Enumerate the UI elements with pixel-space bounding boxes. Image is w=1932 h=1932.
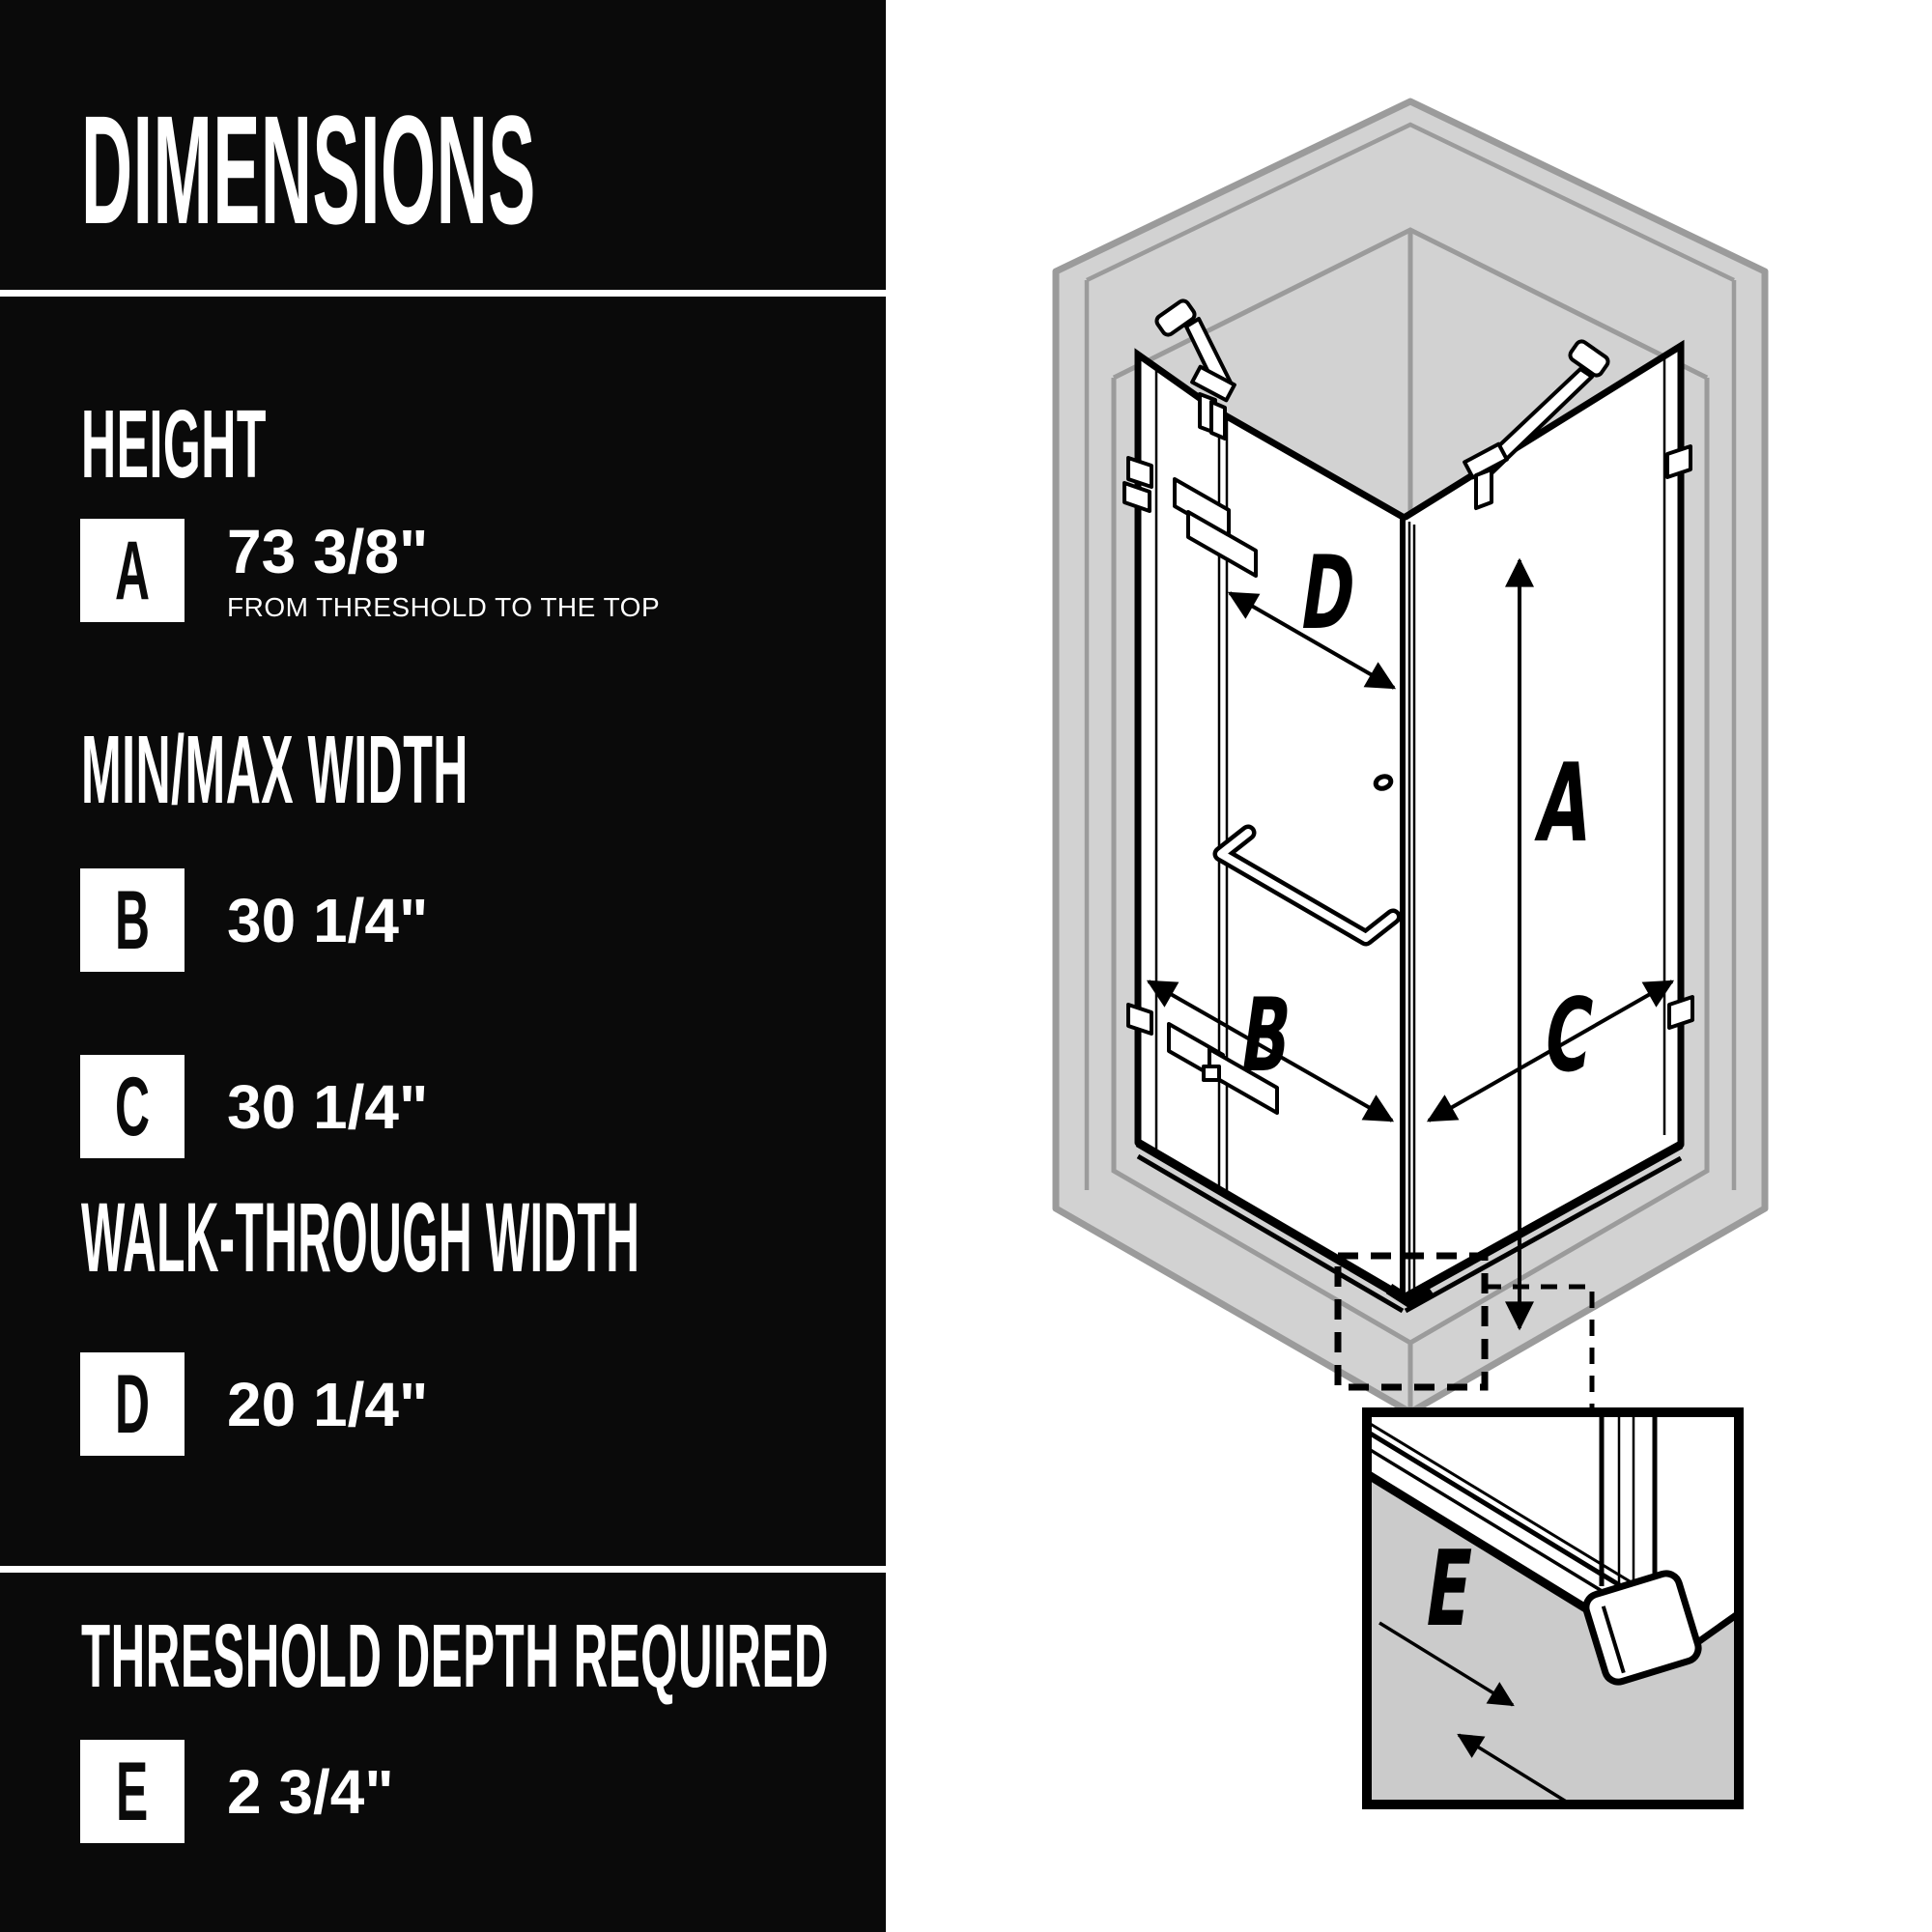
dimension-value-c: 30 1/4"	[227, 1076, 428, 1138]
hinge-icon	[1204, 1066, 1219, 1080]
separator	[0, 1566, 886, 1573]
section-heading-minmax-width: MIN/MAX WIDTH	[81, 722, 469, 818]
dimension-badge-c: C	[80, 1055, 185, 1158]
dimension-value-a: 73 3/8"	[227, 521, 660, 582]
shower-enclosure-diagram: A B C D	[886, 0, 1932, 1932]
threshold-detail-inset: E	[1364, 1412, 1739, 1820]
spec-panel: DIMENSIONS HEIGHT A 73 3/8" FROM THRESHO…	[0, 0, 886, 1932]
dimension-value-d: 20 1/4"	[227, 1374, 428, 1435]
wall-bracket-icon	[1669, 997, 1692, 1028]
dimension-note-a: FROM THRESHOLD TO THE TOP	[227, 594, 660, 621]
spec-row-height-a: A 73 3/8" FROM THRESHOLD TO THE TOP	[80, 519, 660, 622]
spec-row-threshold-e: E 2 3/4"	[80, 1740, 394, 1843]
dimension-badge-d: D	[80, 1352, 185, 1456]
dimension-badge-e: E	[80, 1740, 185, 1843]
wall-bracket-icon	[1667, 446, 1690, 477]
spec-row-width-c: C 30 1/4"	[80, 1055, 428, 1158]
dimension-badge-b: B	[80, 868, 185, 972]
section-heading-threshold: THRESHOLD DEPTH REQUIRED	[81, 1611, 829, 1701]
section-heading-walkthrough: WALK-THROUGH WIDTH	[81, 1188, 639, 1287]
dimension-value-b: 30 1/4"	[227, 890, 428, 952]
section-heading-height: HEIGHT	[81, 396, 267, 493]
dimensions-infographic: DIMENSIONS HEIGHT A 73 3/8" FROM THRESHO…	[0, 0, 1932, 1932]
dimension-badge-a: A	[80, 519, 185, 622]
separator	[0, 290, 886, 297]
spec-row-walkthrough-d: D 20 1/4"	[80, 1352, 428, 1456]
page-title: DIMENSIONS	[81, 93, 536, 247]
spec-row-width-b: B 30 1/4"	[80, 868, 428, 972]
dimension-value-e: 2 3/4"	[227, 1761, 394, 1823]
